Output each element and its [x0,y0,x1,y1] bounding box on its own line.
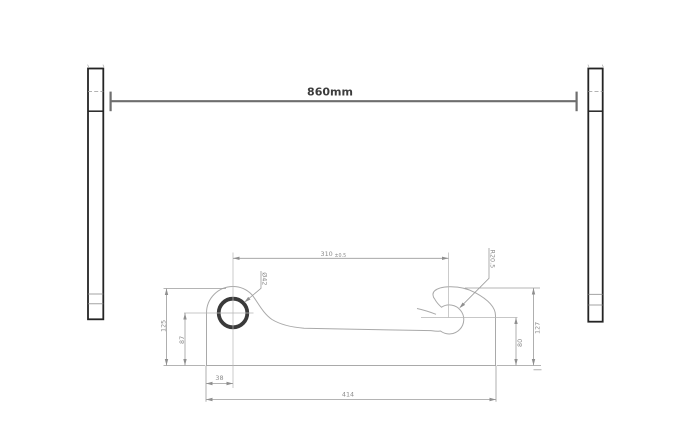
dim-left-inner-arrow-top [183,313,186,320]
dim-left-outer-height: 125 [160,289,226,366]
coupler-outline [207,287,496,366]
leader-hole-diameter-label: Ø42 [261,272,269,285]
dim-hole-offset-arrow-left [206,382,213,385]
technical-drawing-canvas: 860mm 310 ±0.5 Ø42 R20.5 [0,0,700,431]
dim-hole-offset-label: 38 [215,374,223,382]
leader-hole-diameter: Ø42 [244,271,268,302]
right-plate [588,65,603,322]
dim-hole-offset-arrow-right [227,382,234,385]
dim-left-outer-label: 125 [160,320,168,332]
dim-pin-distance: 310 ±0.5 [233,250,449,260]
dim-overall-width-label: 860mm [307,86,353,99]
technical-drawing-page: 860mm 310 ±0.5 Ø42 R20.5 [0,0,700,431]
dim-hole-offset: 38 [206,374,233,385]
right-plate-corner-ticks [588,65,603,67]
left-plate-outline [88,69,103,320]
dim-left-inner-arrow-bottom [183,359,186,366]
dim-left-inner-label: 87 [178,336,186,344]
coupler-side-view [184,253,518,389]
dim-left-outer-arrow-top [165,289,168,296]
dim-base-length-label: 414 [342,390,354,398]
dim-overall-width: 860mm [111,86,577,112]
dim-right-outer-label: 127 [534,322,542,334]
dim-base-length: 414 [206,366,496,402]
leader-hook-radius-label: R20.5 [489,250,497,269]
dim-base-length-arrow-right [490,398,497,401]
dim-left-inner-height: 87 [178,313,187,366]
dim-pin-distance-arrow-left [233,257,240,260]
left-plate-corner-ticks [88,65,104,67]
dim-right-outer-arrow-bottom [532,359,535,366]
dim-pin-distance-label: 310 [321,250,333,258]
dim-right-inner-arrow-top [514,318,517,325]
dim-right-outer-height: 127 [465,288,542,370]
dim-base-length-arrow-left [206,398,213,401]
dim-right-outer-arrow-top [532,288,535,295]
dim-left-outer-arrow-bottom [165,359,168,366]
dim-right-inner-height: 80 [514,318,524,366]
hook-leadin-edge [417,309,436,315]
dim-pin-distance-tolerance: ±0.5 [335,253,347,259]
right-plate-outline [588,69,602,322]
dim-right-inner-label: 80 [516,339,524,347]
left-plate [88,65,104,320]
dim-right-inner-arrow-bottom [514,359,517,366]
leader-hook-radius: R20.5 [459,248,496,308]
dim-pin-distance-arrow-right [442,257,449,260]
